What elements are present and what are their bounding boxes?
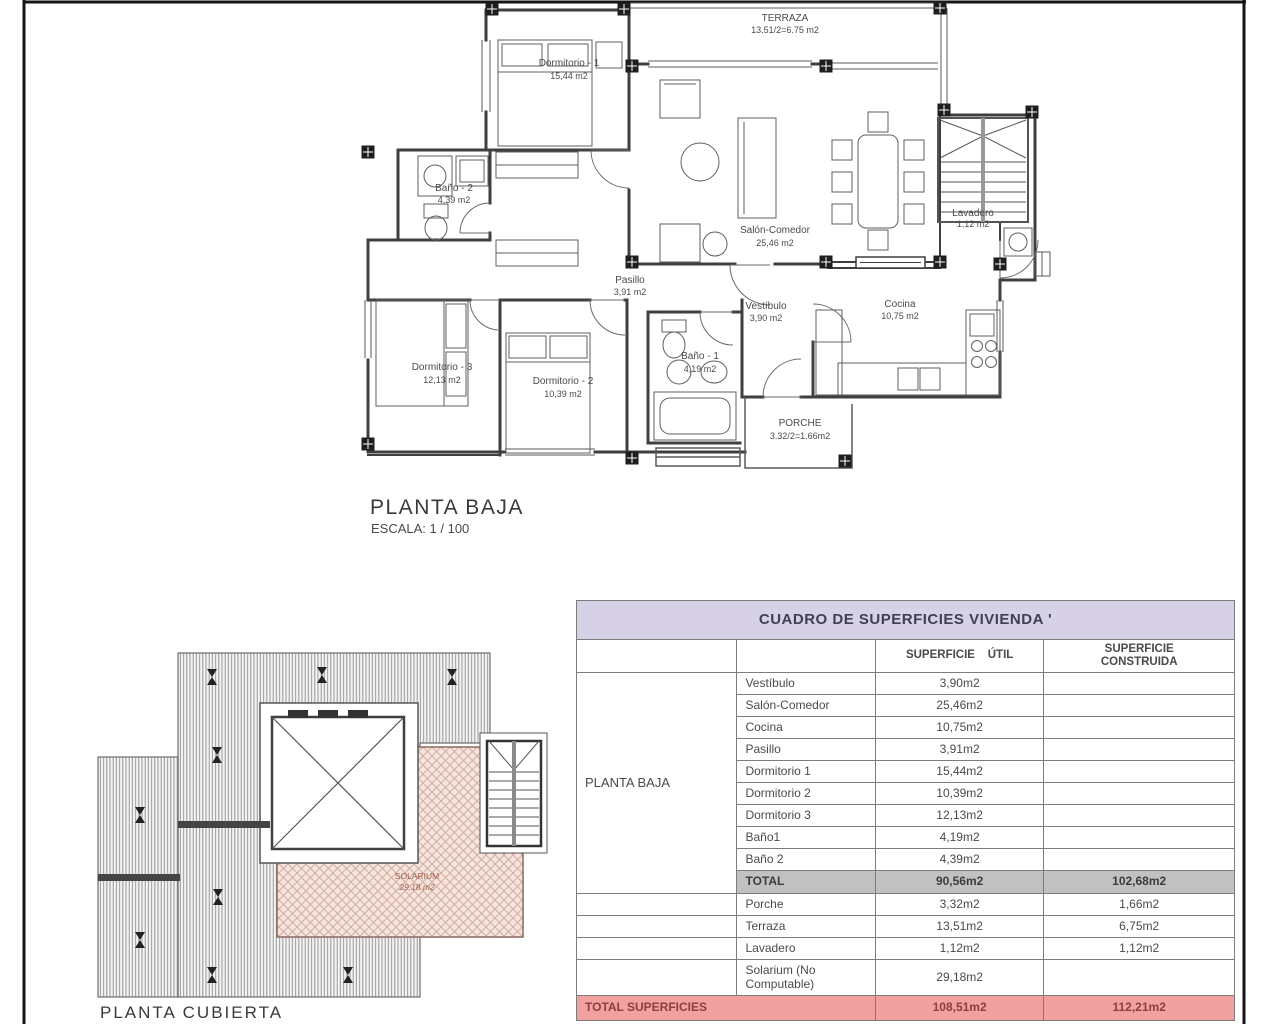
row-built — [1044, 805, 1235, 827]
header-empty-1 — [577, 640, 737, 673]
row-name: Dormitorio 3 — [737, 805, 875, 827]
table-row: Porche 3,32m2 1,66m2 — [577, 894, 1235, 916]
solarium-area-label: 29,18 m2 — [398, 882, 435, 892]
grand-total-label: TOTAL SUPERFICIES — [577, 996, 876, 1021]
pasillo-area: 3,91 m2 — [614, 287, 647, 297]
row-util: 3,90m2 — [875, 673, 1044, 695]
row-name: Salón-Comedor — [737, 695, 875, 717]
row-name: Terraza — [737, 916, 875, 938]
table-title-row: CUADRO DE SUPERFICIES VIVIENDA ' — [577, 601, 1235, 640]
empty-cell — [577, 960, 737, 996]
row-name: Vestíbulo — [737, 673, 875, 695]
table-title: CUADRO DE SUPERFICIES VIVIENDA ' — [577, 601, 1235, 640]
cocina-label: Cocina — [884, 299, 916, 310]
lavadero-label: Lavadero — [952, 208, 994, 219]
furniture — [376, 40, 1032, 453]
row-util: 10,75m2 — [875, 717, 1044, 739]
roof-stairs — [480, 733, 547, 853]
door-arcs — [460, 150, 1038, 397]
row-built: 1,12m2 — [1044, 938, 1235, 960]
salon-area: 25,46 m2 — [756, 238, 794, 248]
dormitorio3-area: 12,13 m2 — [423, 375, 461, 385]
row-built: 6,75m2 — [1044, 916, 1235, 938]
lavadero-area: 1,12 m2 — [957, 219, 990, 229]
solarium-label: SOLARIUM — [395, 871, 439, 881]
empty-cell — [577, 938, 737, 960]
header-superficie-util: SUPERFICIE ÚTIL — [875, 640, 1044, 673]
row-name: Baño 2 — [737, 849, 875, 871]
pasillo-label: Pasillo — [615, 275, 645, 286]
dormitorio3-label: Dormitorio - 3 — [412, 362, 473, 373]
floor-plan-scale: ESCALA: 1 / 100 — [371, 521, 469, 536]
cocina-area: 10,75 m2 — [881, 311, 919, 321]
dormitorio2-area: 10,39 m2 — [544, 389, 582, 399]
bano1-area: 4,19 m2 — [684, 364, 717, 374]
table-row: Solarium (No Computable) 29,18m2 — [577, 960, 1235, 996]
floor-plan: TERRAZA 13.51/2=6.75 m2 Dormitorio - 1 1… — [362, 2, 1051, 537]
roof-plan: SOLARIUM 29,18 m2 PLANTA CUBIERTA — [98, 653, 547, 1022]
stairs — [938, 118, 1028, 222]
row-name: Baño1 — [737, 827, 875, 849]
row-built — [1044, 960, 1235, 996]
row-util: 29,18m2 — [875, 960, 1044, 996]
row-built — [1044, 739, 1235, 761]
grand-total-util: 108,51m2 — [875, 996, 1044, 1021]
row-util: 1,12m2 — [875, 938, 1044, 960]
table-row: Terraza 13,51m2 6,75m2 — [577, 916, 1235, 938]
dormitorio1-area: 15,44 m2 — [550, 71, 588, 81]
floor-plan-caption: PLANTA BAJA ESCALA: 1 / 100 — [370, 496, 524, 536]
row-util: 3,91m2 — [875, 739, 1044, 761]
row-name: Cocina — [737, 717, 875, 739]
porche-label: PORCHE — [779, 418, 822, 429]
total-label: TOTAL — [737, 871, 875, 894]
grand-total-built: 112,21m2 — [1044, 996, 1235, 1021]
sliding-door — [856, 257, 925, 268]
table-header-row: SUPERFICIE ÚTIL SUPERFICIE CONSTRUIDA — [577, 640, 1235, 673]
row-util: 4,19m2 — [875, 827, 1044, 849]
empty-cell — [577, 916, 737, 938]
surface-table: CUADRO DE SUPERFICIES VIVIENDA ' SUPERFI… — [576, 600, 1235, 1021]
bano2-label: Baño - 2 — [435, 183, 473, 194]
row-name: Porche — [737, 894, 875, 916]
dormitorio1-label: Dormitorio - 1 — [539, 58, 600, 69]
vestibulo-area: 3,90 m2 — [750, 313, 783, 323]
terraza-label: TERRAZA — [762, 13, 809, 24]
row-util: 15,44m2 — [875, 761, 1044, 783]
salon-label: Salón-Comedor — [740, 225, 811, 236]
row-util: 3,32m2 — [875, 894, 1044, 916]
porche-area: 3.32/2=1.66m2 — [770, 431, 830, 441]
grand-total-row: TOTAL SUPERFICIES 108,51m2 112,21m2 — [577, 996, 1235, 1021]
row-name: Pasillo — [737, 739, 875, 761]
dormitorio2-label: Dormitorio - 2 — [533, 376, 594, 387]
bano2-area: 4,39 m2 — [438, 195, 471, 205]
row-util: 4,39m2 — [875, 849, 1044, 871]
group-planta-baja: PLANTA BAJA — [577, 673, 737, 894]
total-built: 102,68m2 — [1044, 871, 1235, 894]
row-built — [1044, 717, 1235, 739]
row-util: 13,51m2 — [875, 916, 1044, 938]
row-name: Dormitorio 2 — [737, 783, 875, 805]
row-built — [1044, 761, 1235, 783]
vestibulo-label: Vestíbulo — [745, 301, 787, 312]
row-built — [1044, 849, 1235, 871]
roof-plan-title: PLANTA CUBIERTA — [100, 1003, 283, 1022]
row-built — [1044, 673, 1235, 695]
row-built — [1044, 695, 1235, 717]
header-empty-2 — [737, 640, 875, 673]
row-util: 10,39m2 — [875, 783, 1044, 805]
floor-plan-title: PLANTA BAJA — [370, 496, 524, 519]
row-name: Lavadero — [737, 938, 875, 960]
row-built — [1044, 783, 1235, 805]
roof-tower — [260, 703, 418, 863]
plan-sheet: { "floor_plan": { "title": "PLANTA BAJA"… — [0, 0, 1280, 1024]
table-row: PLANTA BAJA Vestíbulo 3,90m2 — [577, 673, 1235, 695]
row-built — [1044, 827, 1235, 849]
terraza-area: 13.51/2=6.75 m2 — [751, 25, 819, 35]
row-util: 25,46m2 — [875, 695, 1044, 717]
total-util: 90,56m2 — [875, 871, 1044, 894]
table-row: Lavadero 1,12m2 1,12m2 — [577, 938, 1235, 960]
row-built: 1,66m2 — [1044, 894, 1235, 916]
row-util: 12,13m2 — [875, 805, 1044, 827]
row-name: Solarium (No Computable) — [737, 960, 875, 996]
empty-cell — [577, 894, 737, 916]
header-superficie-construida: SUPERFICIE CONSTRUIDA — [1044, 640, 1235, 673]
row-name: Dormitorio 1 — [737, 761, 875, 783]
bano1-label: Baño - 1 — [681, 351, 719, 362]
